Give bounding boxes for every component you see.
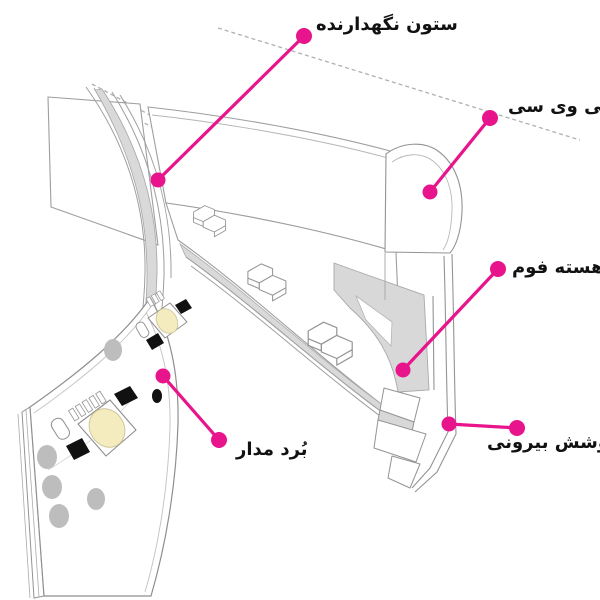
diagram-canvas: ستون نگهدارنده پی وی سی هسته فوم پوشش بی…	[0, 0, 600, 600]
label-support-column: ستون نگهدارنده	[316, 14, 458, 36]
led-neon-flex-diagram	[0, 0, 600, 600]
leader-outer-cover	[449, 424, 517, 428]
label-outer-cover: پوشش بیرونی	[487, 432, 600, 454]
label-foam-core: هسته فوم	[512, 257, 600, 279]
label-circuit-board: بُرد مدار	[236, 439, 308, 461]
outer-cover-steps	[374, 388, 426, 488]
label-pvc: پی وی سی	[508, 96, 600, 118]
